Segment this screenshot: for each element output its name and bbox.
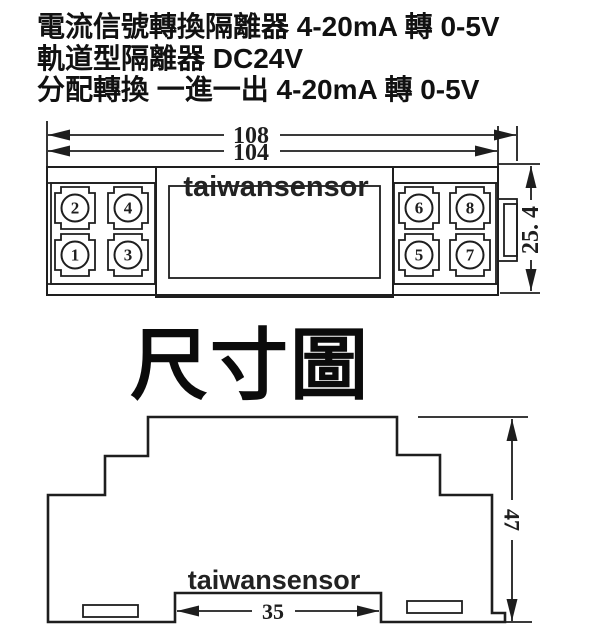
terminal-6: 6 [399,187,439,229]
dimension-104: 104 [48,140,497,166]
mounting-slot-left [83,605,138,617]
dimension-104-label: 104 [233,140,269,166]
terminal-2-label: 2 [71,199,80,218]
terminal-6-label: 6 [415,199,424,218]
dimension-drawing-svg: taiwansensor 2 4 1 3 [0,0,600,640]
terminal-4: 4 [108,187,148,229]
terminal-5: 5 [399,234,439,276]
watermark-side-view: taiwansensor [188,565,361,595]
top-view-drawing: taiwansensor 2 4 1 3 [47,121,544,297]
terminal-1-label: 1 [71,246,80,265]
dimension-47-label: 47 [500,509,525,531]
dimension-25-4: 25. 4 [518,166,544,291]
terminal-8-label: 8 [466,199,475,218]
side-profile-drawing: taiwansensor 47 35 [48,417,532,624]
terminal-7-label: 7 [466,246,475,265]
terminal-5-label: 5 [415,246,424,265]
dimension-47: 47 [500,419,525,621]
dimension-108: 108 [48,123,516,149]
din-clip-tab [498,199,517,261]
dimension-25-4-label: 25. 4 [518,206,544,254]
terminal-4-label: 4 [124,199,133,218]
terminal-8: 8 [450,187,490,229]
dimension-35: 35 [177,599,379,624]
terminal-3: 3 [108,234,148,276]
product-dimension-image: 電流信號轉換隔離器 4-20mA 轉 0-5V 軌道型隔離器 DC24V 分配轉… [0,0,600,640]
terminal-2: 2 [55,187,95,229]
terminal-3-label: 3 [124,246,133,265]
watermark-top-view: taiwansensor [183,171,368,203]
dimension-35-label: 35 [262,599,284,624]
mounting-slot-right [407,601,462,613]
terminal-1: 1 [55,234,95,276]
terminal-7: 7 [450,234,490,276]
